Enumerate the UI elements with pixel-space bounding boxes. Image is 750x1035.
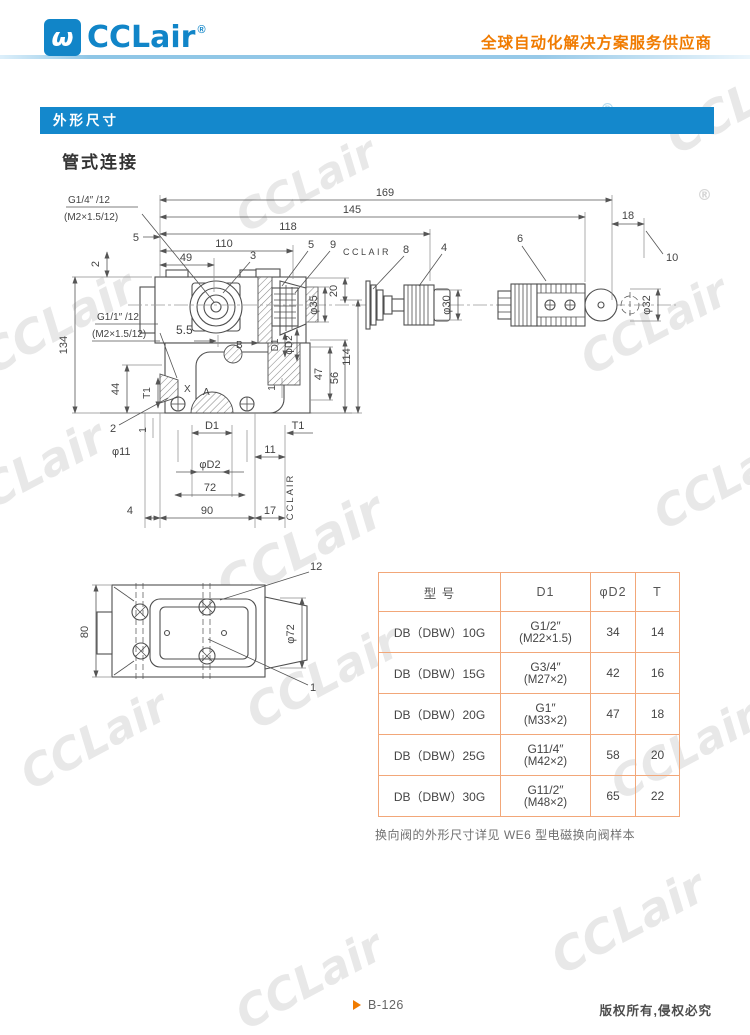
catalog-page: CCLair ® CCLair ® CCLair CCLair CCLair C… [0,0,750,1035]
t-cell: 18 [636,694,680,735]
table-row: DB（DBW）10G G1/2″(M22×1.5) 34 14 [379,612,680,653]
cclair-mark-vertical: CCLAIR [285,474,296,521]
callout-8: 8 [403,244,409,256]
callout-12: 12 [310,561,322,573]
dim-phi32: φ32 [641,295,653,314]
table-header-row: 型 号 D1 φD2 T [379,573,680,612]
d1-size: G3/4″ [503,660,588,674]
port-a: A [203,387,210,398]
page-marker-icon [353,1000,361,1010]
t-cell: 14 [636,612,680,653]
company-logo: ω CCLair® [44,19,206,56]
port-b: B [236,340,243,351]
logo-text: CCLair [87,20,195,55]
col-header-model: 型 号 [379,573,501,612]
model-cell: DB（DBW）20G [379,694,501,735]
page-number-text: B-126 [368,998,404,1012]
d1-thread: (M27×2) [503,674,588,686]
svg-text:ω: ω [52,22,74,51]
phid2-cell: 47 [591,694,636,735]
port-label-g14: G1/4″ /12 [68,195,110,206]
table-row: DB（DBW）15G G3/4″(M27×2) 42 16 [379,653,680,694]
d1-cell: G3/4″(M27×2) [501,653,591,694]
dim-90: 90 [201,505,213,517]
phid2-cell: 34 [591,612,636,653]
dim-114: 114 [341,348,353,366]
dim-d1-bottom: D1 [205,420,219,432]
spec-table: 型 号 D1 φD2 T DB（DBW）10G G1/2″(M22×1.5) 3… [378,572,680,817]
dim-169: 169 [376,187,394,199]
screw-icon [565,300,575,310]
dim-11: 11 [264,444,275,456]
callout-6: 6 [517,233,523,245]
d1-thread: (M33×2) [503,715,588,727]
port-x: X [184,384,191,395]
model-cell: DB（DBW）30G [379,776,501,817]
valve-dimension-drawing: 169 145 118 110 49 5 2 18 10 G1/4″ /12 (… [40,180,730,570]
hand-knob-assembly [366,281,450,329]
dim-145: 145 [343,204,361,216]
d1-size: G1″ [503,701,588,715]
cclair-mark: CCLAIR [343,247,391,257]
reference-note: 换向阀的外形尺寸详见 WE6 型电磁换向阀样本 [375,826,635,843]
dim-4: 4 [127,505,133,517]
watermark: CCLair [227,921,391,1035]
label-t1-left: T1 [142,387,153,399]
d1-thread: (M48×2) [503,797,588,809]
model-cell: DB（DBW）25G [379,735,501,776]
dim-phid2-vert: φD2 [284,335,295,355]
section-title-bar: 外形尺寸 [40,107,714,134]
table-row: DB（DBW）20G G1″(M33×2) 47 18 [379,694,680,735]
phid2-cell: 58 [591,735,636,776]
mounting-screw-icon [240,397,254,411]
watermark: CCLair [542,859,714,985]
dim-49: 49 [180,252,192,264]
dim-110: 110 [215,238,233,250]
dim-2-top: 2 [90,261,102,267]
d1-thread: (M42×2) [503,756,588,768]
dim-phi11: φ11 [112,446,131,458]
dim-44: 44 [110,383,122,395]
callout-4: 4 [441,242,447,254]
d1-size: G11/2″ [503,783,588,797]
dim-18: 18 [622,210,634,222]
screw-icon [545,300,555,310]
col-header-t: T [636,573,680,612]
port-label-g11-thread: (M2×1.5/12) [92,329,146,340]
t-cell: 20 [636,735,680,776]
phid2-cell: 65 [591,776,636,817]
d1-thread: (M22×1.5) [503,633,588,645]
callout-10: 10 [666,252,678,264]
table-row: DB（DBW）25G G11/4″(M42×2) 58 20 [379,735,680,776]
port-label-g11: G1/1″ /12 [97,312,139,323]
dim-47: 47 [313,368,325,380]
dim-17: 17 [264,505,276,517]
dim-80: 80 [79,626,91,638]
dim-118: 118 [279,221,297,233]
dim-1-mid: 1 [267,385,278,391]
d1-cell: G1″(M33×2) [501,694,591,735]
page-number: B-126 [353,998,404,1012]
callout-5: 5 [308,239,314,251]
section-title: 外形尺寸 [40,107,714,134]
dim-t1-bottom: T1 [292,420,305,432]
company-tagline: 全球自动化解决方案服务供应商 [481,31,712,53]
d1-size: G1/2″ [503,619,588,633]
mounting-screw-icon [171,397,185,411]
model-cell: DB（DBW）10G [379,612,501,653]
d1-cell: G11/4″(M42×2) [501,735,591,776]
col-header-d1: D1 [501,573,591,612]
top-view-body [97,583,307,679]
phid2-cell: 42 [591,653,636,694]
dim-phi35: φ35 [308,295,320,314]
dim-1-bottom: 1 [138,427,149,433]
extension-lines [72,195,661,528]
dim-d1-vert: D1 [270,338,281,351]
dim-phi30: φ30 [441,295,453,314]
t-cell: 22 [636,776,680,817]
dim-5-5: 5.5 [176,323,193,337]
table-row: DB（DBW）30G G11/2″(M48×2) 65 22 [379,776,680,817]
model-cell: DB（DBW）15G [379,653,501,694]
drawing-subtitle: 管式连接 [62,148,138,173]
dim-20: 20 [328,285,340,297]
dim-56: 56 [329,372,341,384]
callout-9: 9 [330,239,336,251]
dim-72: 72 [204,482,216,494]
d1-size: G11/4″ [503,742,588,756]
dim-5-top: 5 [133,232,139,244]
callout-3: 3 [250,250,256,262]
callout-2-bottom: 2 [110,423,116,435]
callout-1: 1 [310,682,316,694]
d1-cell: G1/2″(M22×1.5) [501,612,591,653]
dim-134: 134 [58,336,70,354]
d1-cell: G11/2″(M48×2) [501,776,591,817]
dim-phid2-bottom: φD2 [199,459,220,471]
t-cell: 16 [636,653,680,694]
main-port-circles [190,281,242,333]
copyright-notice: 版权所有,侵权必究 [600,1000,712,1019]
col-header-phid2: φD2 [591,573,636,612]
dim-phi72: φ72 [285,624,297,643]
valve-top-view-drawing: 80 φ72 12 1 [55,550,355,715]
logo-registered-mark: ® [197,24,205,36]
port-label-g14-thread: (M2×1.5/12) [64,212,118,223]
logo-mark-icon: ω [44,19,81,56]
